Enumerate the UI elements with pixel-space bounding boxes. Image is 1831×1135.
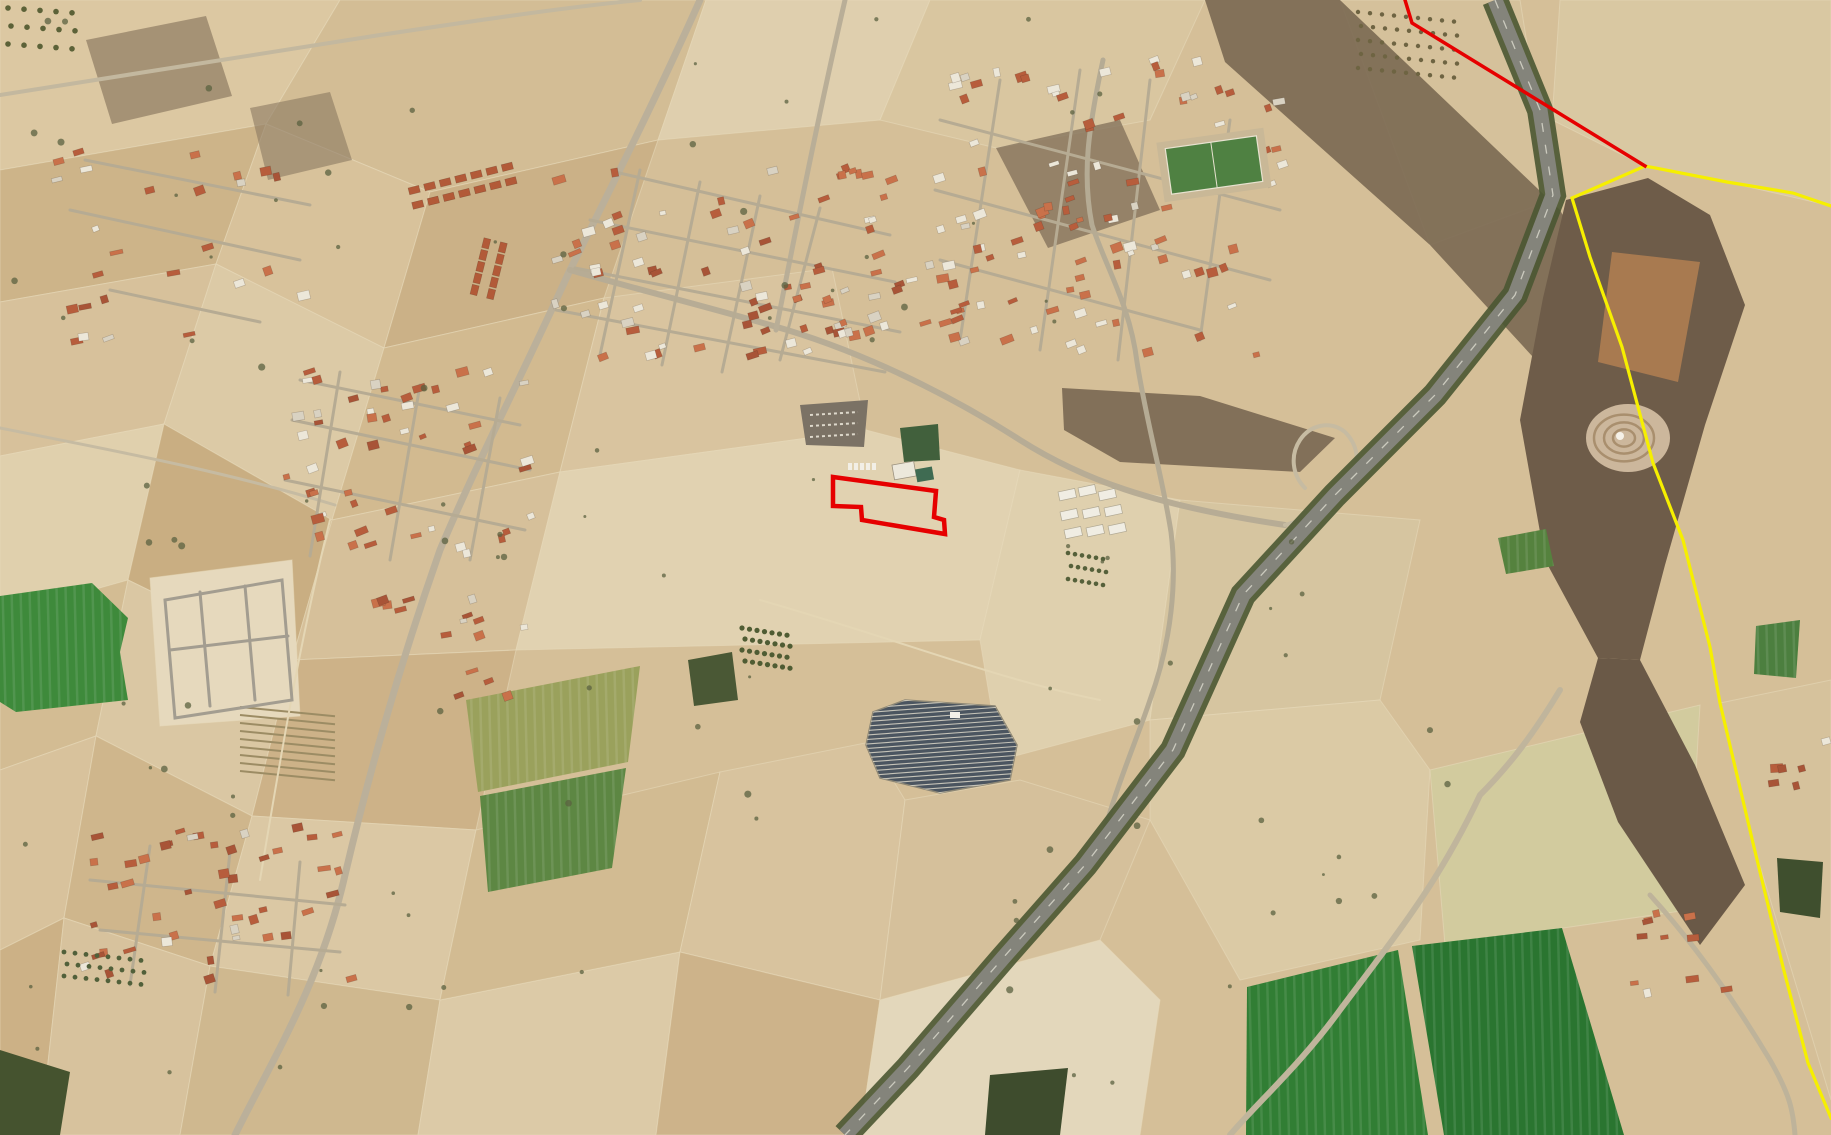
house [1686, 975, 1699, 983]
house [611, 168, 619, 177]
house [370, 379, 381, 389]
quarry [1586, 404, 1670, 472]
house [233, 171, 242, 180]
house [1768, 779, 1779, 787]
house [236, 179, 245, 187]
house [1103, 214, 1112, 222]
house [925, 260, 934, 269]
house [1228, 244, 1239, 255]
house [273, 172, 281, 181]
house [460, 618, 467, 623]
house [207, 956, 214, 965]
house [232, 914, 243, 921]
house [838, 171, 847, 180]
house [973, 244, 982, 254]
map-viewport[interactable] [0, 0, 1831, 1135]
house [292, 411, 305, 421]
house [1131, 202, 1139, 211]
house [161, 937, 172, 947]
house [380, 386, 388, 392]
house [976, 301, 985, 309]
house [124, 859, 137, 868]
house [520, 624, 528, 630]
house [1155, 69, 1165, 78]
house [462, 549, 471, 558]
house [152, 913, 161, 921]
house [1652, 909, 1660, 917]
house [260, 166, 272, 176]
house [281, 931, 292, 940]
parking-lot [800, 400, 868, 447]
house [1113, 260, 1121, 270]
house [1687, 934, 1699, 942]
house [591, 267, 602, 276]
house [717, 197, 725, 206]
house [993, 68, 1001, 78]
house [313, 409, 321, 418]
house [1777, 764, 1786, 773]
house [90, 858, 98, 866]
house [1643, 988, 1652, 998]
house [210, 841, 218, 848]
house [431, 385, 440, 394]
house [230, 924, 239, 934]
house [1660, 935, 1668, 940]
house [307, 834, 318, 841]
house [262, 933, 273, 942]
house [367, 413, 377, 422]
house [78, 332, 89, 341]
house [1798, 765, 1806, 773]
house [218, 868, 230, 878]
satellite-map [0, 0, 1831, 1135]
house [1630, 981, 1638, 986]
house [1066, 287, 1074, 293]
house [1062, 206, 1069, 215]
house [1112, 319, 1120, 327]
house [232, 935, 240, 940]
house [1637, 933, 1648, 939]
house [659, 210, 666, 215]
house [1044, 202, 1053, 211]
house [428, 526, 435, 532]
solar-inverter-building [950, 712, 960, 718]
